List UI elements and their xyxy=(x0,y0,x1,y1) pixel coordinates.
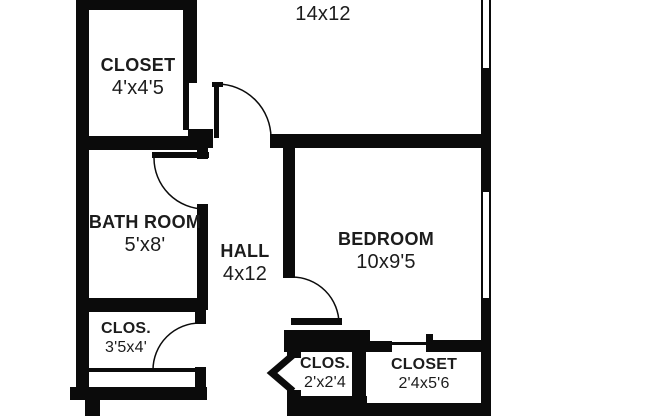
wall-closet-bl-right-lower xyxy=(195,367,206,388)
bifold-door-chevron-icon xyxy=(272,355,293,391)
wall-closet-bl-bottom xyxy=(70,387,207,400)
wall-closet-bc-bottom xyxy=(287,396,367,416)
wall-right-mid xyxy=(481,68,491,192)
room-name: HALL xyxy=(220,240,269,263)
window-top-room xyxy=(481,0,491,68)
wall-hall-bottom xyxy=(284,330,370,352)
room-name: CLOS. xyxy=(101,319,151,338)
room-dims: 5'x8' xyxy=(125,234,166,256)
wall-top-room-bottom xyxy=(270,134,491,148)
room-label-bathroom: BATH ROOM 5'x8' xyxy=(90,211,200,256)
door-arc-bedroom xyxy=(292,277,339,324)
room-dims: 4'x4'5 xyxy=(112,77,164,99)
door-arc-bathroom xyxy=(154,158,205,209)
room-dims: 2'4x5'6 xyxy=(398,374,449,394)
room-dims: 10x9'5 xyxy=(356,251,416,273)
wall-right-bottom xyxy=(481,298,491,416)
room-name: CLOSET xyxy=(101,54,176,77)
wall-hall-bedroom xyxy=(283,148,295,278)
room-dims: 4x12 xyxy=(223,263,267,285)
room-label-closet-bottom-center: CLOS. 2'x2'4 xyxy=(295,354,355,393)
door-arc-top-room xyxy=(217,84,271,138)
room-label-closet-bottom-left: CLOS. 3'5x4' xyxy=(86,319,166,358)
wall-closet-bl-right-upper xyxy=(195,312,206,324)
door-leaf-bedroom xyxy=(291,318,342,325)
wall-closet-tl-bottom xyxy=(76,136,200,150)
door-leaf-bathroom xyxy=(152,152,209,158)
wall-door-jamb-top-room xyxy=(188,129,213,148)
wall-closet-br-top-left xyxy=(365,341,392,352)
room-dims: 3'5x4' xyxy=(105,338,147,358)
room-label-closet-top-left: CLOSET 4'x4'5 xyxy=(83,54,193,99)
room-name: BEDROOM xyxy=(338,228,434,251)
window-bedroom xyxy=(481,192,491,298)
door-leaf-closet-bl xyxy=(88,368,195,372)
sliding-door-tick-closet-br xyxy=(426,334,433,352)
room-name: CLOSET xyxy=(391,355,457,374)
wall-bathroom-bottom xyxy=(76,298,206,312)
room-label-closet-bottom-right: CLOSET 2'4x5'6 xyxy=(369,355,479,394)
room-dims: 14x12 xyxy=(295,3,351,25)
door-leaf-top-room xyxy=(214,84,219,138)
floor-plan: 14x12 CLOSET 4'x4'5 BATH ROOM 5'x8' HALL… xyxy=(0,0,652,416)
sliding-door-track-closet-br xyxy=(392,342,430,345)
room-label-hall: HALL 4x12 xyxy=(210,240,280,285)
wall-left-bottom-stub xyxy=(85,400,100,416)
room-name: BATH ROOM xyxy=(89,211,201,234)
room-name: CLOS. xyxy=(300,354,350,373)
wall-closet-tl-top xyxy=(76,0,197,10)
room-label-bedroom: BEDROOM 10x9'5 xyxy=(326,228,446,273)
wall-closet-br-bottom xyxy=(365,403,491,416)
room-dims: 2'x2'4 xyxy=(304,373,346,393)
room-label-top-room: 14x12 xyxy=(268,3,378,25)
